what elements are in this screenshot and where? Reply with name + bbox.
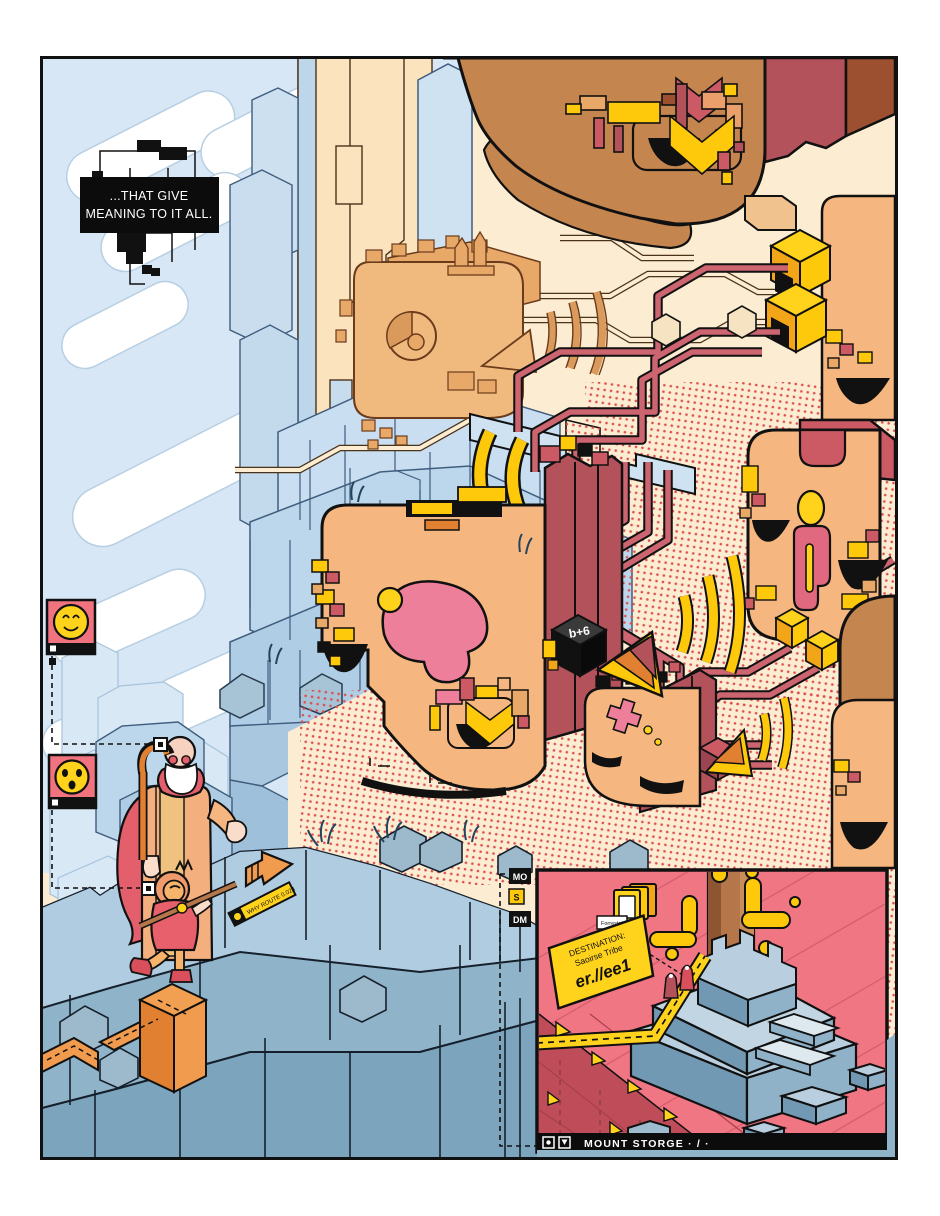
svg-text:...THAT GIVE: ...THAT GIVE (110, 189, 189, 203)
svg-text:S: S (513, 893, 519, 903)
svg-text:MEANING TO IT ALL.: MEANING TO IT ALL. (86, 207, 213, 221)
svg-text:MO: MO (513, 872, 528, 882)
svg-text:MOUNT STORGE · / ·: MOUNT STORGE · / · (584, 1138, 710, 1150)
svg-text:DM: DM (513, 915, 527, 925)
